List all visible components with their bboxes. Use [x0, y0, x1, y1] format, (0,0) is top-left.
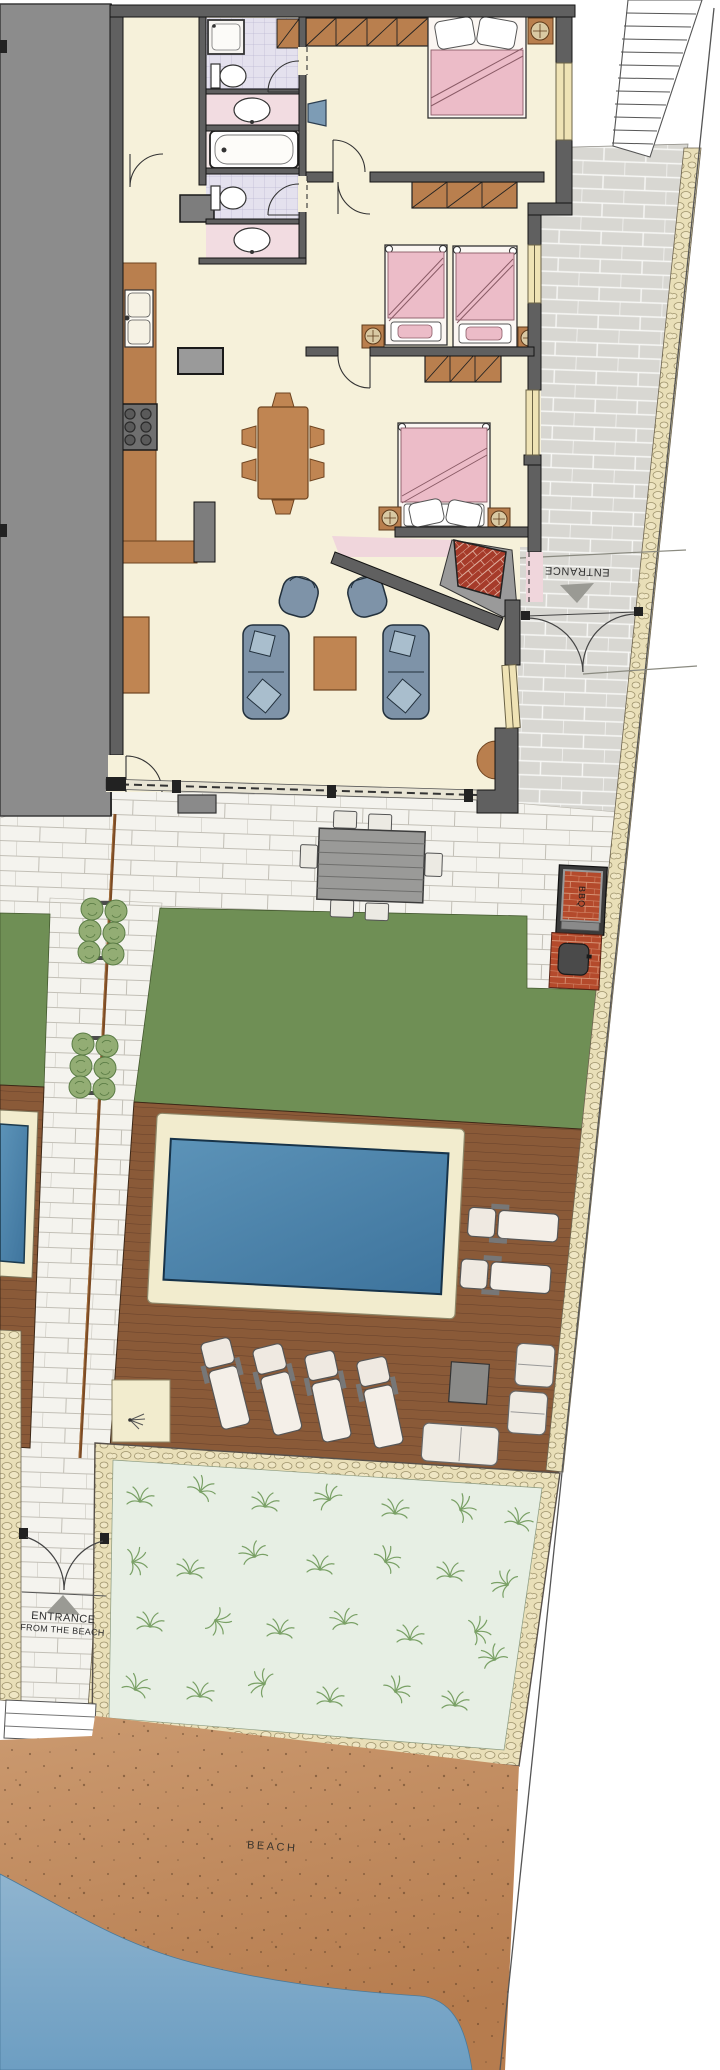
- toilet: [211, 186, 246, 210]
- kitchen-island: [178, 348, 223, 374]
- window: [556, 63, 572, 140]
- sofa: [243, 625, 289, 719]
- entrance-label: ENTRANCE: [544, 564, 610, 578]
- neighbor-pool-water: [0, 1124, 28, 1263]
- bathtub: [210, 131, 298, 168]
- round-nightstand: [362, 325, 384, 348]
- outdoor-shower-corner: [112, 1380, 170, 1442]
- toilet: [211, 64, 246, 88]
- double-bed: [398, 423, 490, 529]
- utility-box: [180, 195, 214, 222]
- stone-border-path-left: [0, 1330, 21, 1702]
- pool-water: [163, 1139, 448, 1294]
- deck-side-table: [449, 1362, 490, 1405]
- coffee-table: [314, 637, 356, 690]
- single-bed: [453, 246, 517, 347]
- sofa: [383, 625, 429, 719]
- garden-bed: [109, 1460, 542, 1750]
- beach-steps: [4, 1700, 96, 1742]
- terrace-step: [178, 795, 216, 813]
- sideboard: [122, 617, 149, 693]
- neighbor-building: [0, 4, 111, 816]
- round-nightstand: [528, 18, 553, 44]
- kitchen-sink: [125, 290, 154, 347]
- wardrobe: [425, 354, 501, 382]
- bbq-label: BBQ: [576, 886, 587, 909]
- wardrobe: [306, 18, 428, 46]
- wardrobe: [412, 182, 517, 208]
- villa: [106, 5, 575, 813]
- window: [528, 245, 541, 303]
- shower: [208, 20, 244, 54]
- double-bed: [428, 14, 526, 118]
- window: [526, 390, 539, 455]
- lawn-left-strip: [0, 913, 50, 1087]
- scrub-garden: [92, 1443, 560, 1766]
- single-bed: [385, 245, 447, 345]
- kitchen-counter: [123, 541, 197, 563]
- grill-icon: [558, 943, 590, 976]
- exterior-stairs: [612, 0, 702, 157]
- dining-table: [258, 407, 308, 499]
- site-plan-canvas: ENTRANCE ENTRANCE FROM THE BEACH BEACH: [0, 0, 720, 2070]
- laundry-basket: [308, 100, 326, 126]
- stove: [119, 404, 157, 450]
- pool: [147, 1113, 465, 1319]
- site-plan: ENTRANCE ENTRANCE FROM THE BEACH BEACH: [0, 0, 720, 2070]
